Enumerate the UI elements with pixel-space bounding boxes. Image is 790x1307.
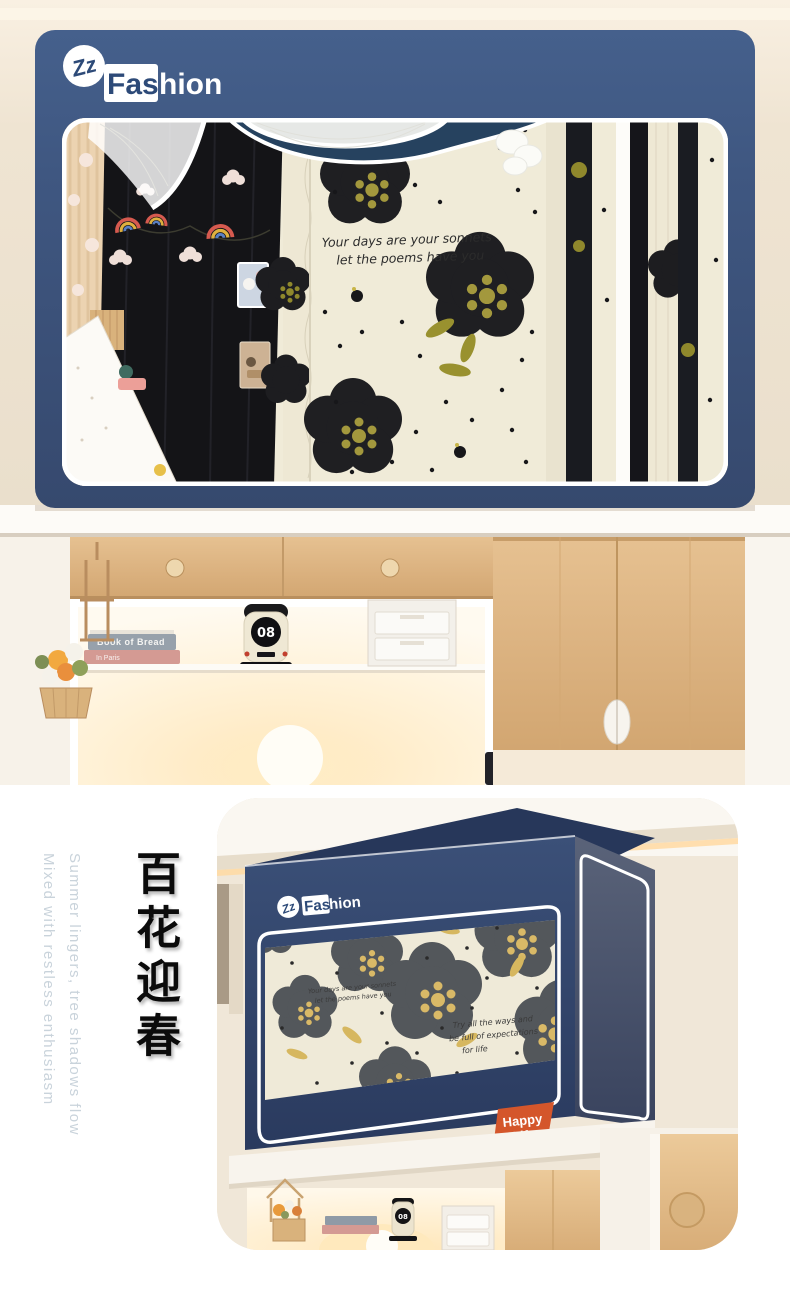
book-stack: Book of Bread In Paris [84,630,180,664]
wardrobe [493,537,745,785]
product-photo-card: Your days are your sonnets let the poems… [217,798,738,1250]
ceiling-light-strip [0,8,790,20]
card-brand-hion: hion [328,894,361,914]
hero-photo: Book of Bread In Paris 08 [0,0,790,785]
curtain-box: Your days are your sonnets let the poems… [217,808,655,1150]
card-round-knob [670,1193,704,1227]
desk-clock: 08 [240,604,292,669]
wooden-drawers [70,537,493,599]
card-books [322,1216,379,1234]
bed-interior-photo: Your days are your sonnets let the poems… [62,66,728,486]
drawer-organizer [368,600,456,666]
clock-number: 08 [257,626,275,641]
card-organizer [442,1206,494,1250]
window-slit [217,884,229,1004]
brand-hion: hion [159,68,222,101]
book-bottom-title: In Paris [96,655,120,662]
card-clock-number: 08 [398,1213,408,1221]
drawer-knob [381,559,399,577]
folded-curtain-stack [546,118,728,486]
brand-fas: Fas [107,68,159,101]
promo-tagline-line2: Mixed with restless enthusiasm [40,853,57,1153]
card-brand-fas: Fas [304,896,331,915]
right-wall-panel [745,537,790,785]
dorm-furniture: Book of Bread In Paris 08 [0,505,790,785]
drawer-knob [166,559,184,577]
promo-tagline-line1: Summer lingers, tree shadows flow [66,853,83,1153]
promo-headline-zh: 百花迎春 [122,850,187,1080]
